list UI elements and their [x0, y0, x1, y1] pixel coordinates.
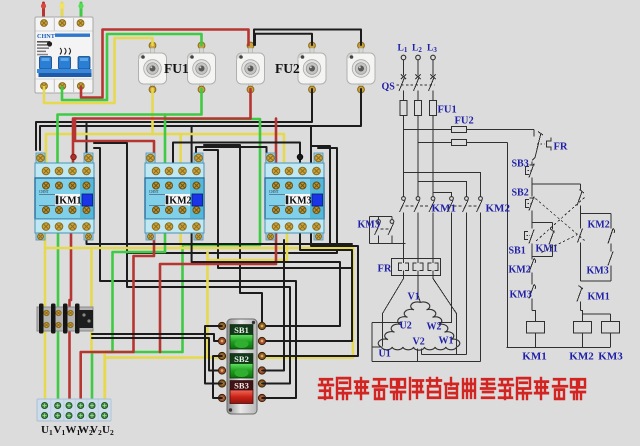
svg-text:SB3: SB3: [234, 381, 249, 391]
svg-text:SB2: SB2: [512, 188, 529, 199]
svg-text:SB1: SB1: [509, 246, 526, 257]
svg-text:V2: V2: [413, 337, 425, 348]
svg-text:FR: FR: [554, 142, 568, 153]
svg-text:U2: U2: [400, 321, 412, 332]
svg-text:FR: FR: [378, 264, 392, 275]
svg-text:L3: L3: [427, 44, 437, 55]
svg-text:FU1: FU1: [438, 105, 457, 116]
svg-text:KM3: KM3: [587, 266, 609, 277]
svg-text:CHNT: CHNT: [269, 190, 280, 194]
svg-text:KM2: KM2: [569, 351, 594, 363]
svg-text:W1: W1: [439, 336, 454, 347]
svg-text:L1: L1: [398, 44, 408, 55]
svg-text:FU2: FU2: [455, 116, 474, 127]
svg-text:KM3: KM3: [598, 351, 623, 363]
svg-text:SB3: SB3: [512, 159, 529, 170]
svg-text:W2: W2: [427, 322, 442, 333]
svg-text:KM2: KM2: [169, 196, 191, 207]
svg-text:L2: L2: [412, 44, 422, 55]
svg-text:CHNT: CHNT: [149, 190, 160, 194]
svg-text:KM3: KM3: [358, 220, 380, 231]
svg-text:QS: QS: [382, 82, 396, 93]
svg-text:KM1: KM1: [522, 351, 546, 363]
svg-text:SB2: SB2: [234, 354, 249, 364]
svg-text:KM1: KM1: [588, 292, 610, 303]
svg-text:KM3: KM3: [289, 196, 311, 207]
svg-text:CHNT: CHNT: [39, 190, 50, 194]
svg-text:FU2: FU2: [275, 61, 300, 76]
svg-text:KM1: KM1: [59, 196, 81, 207]
svg-text:FU1: FU1: [164, 61, 189, 76]
svg-text:SB1: SB1: [234, 325, 249, 335]
svg-text:KM3: KM3: [510, 290, 532, 301]
svg-text:V1: V1: [408, 292, 420, 303]
svg-text:KM1: KM1: [432, 203, 456, 215]
svg-text:KM2: KM2: [509, 265, 531, 276]
svg-text:CHNT: CHNT: [37, 33, 56, 40]
svg-text:KM2: KM2: [486, 203, 511, 215]
svg-text:U1: U1: [379, 349, 391, 360]
svg-text:KM2: KM2: [588, 220, 610, 231]
svg-text:KM1: KM1: [536, 244, 558, 255]
